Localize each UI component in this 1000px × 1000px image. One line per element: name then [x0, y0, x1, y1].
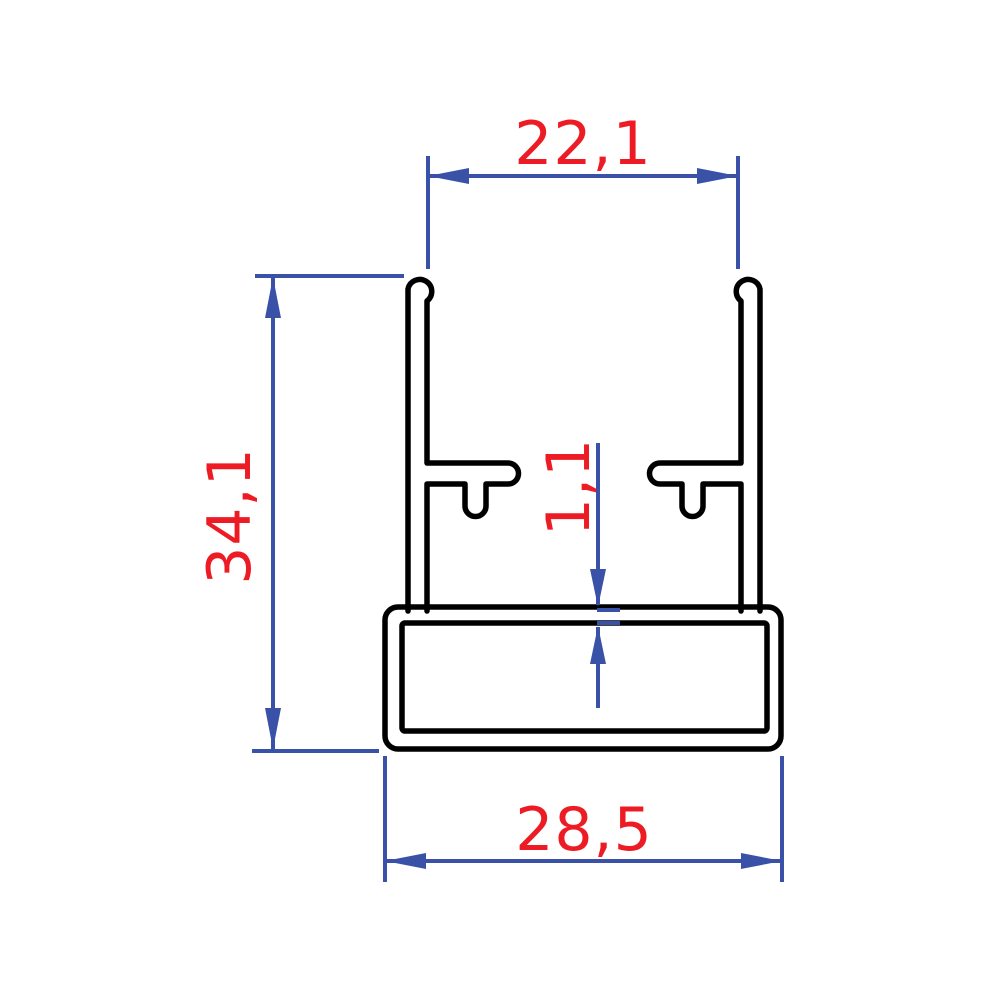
dim-bottom-arrow-left: [385, 853, 426, 869]
dim-bottom-arrow-right: [741, 853, 782, 869]
profile-left-wall: [408, 279, 519, 611]
profile-right-wall: [650, 279, 761, 611]
dim-thickness-label: 1,1: [534, 438, 604, 536]
dimension-graphics: [252, 156, 782, 882]
profile-drawing: 22,1 34,1 1,1 28,5: [0, 0, 1000, 1000]
dim-height-label: 34,1: [195, 447, 265, 585]
drawing-canvas: 22,1 34,1 1,1 28,5: [0, 0, 1000, 1000]
dim-bottom-width-label: 28,5: [515, 795, 653, 865]
dim-thickness-arrow-down: [590, 569, 606, 607]
dim-top-arrow-right: [697, 168, 738, 184]
dim-height: [252, 276, 404, 751]
profile-base-inner: [402, 623, 767, 731]
dim-top-width-label: 22,1: [514, 109, 652, 179]
dim-height-arrow-bottom: [265, 708, 281, 749]
dim-top-arrow-left: [428, 168, 469, 184]
dim-height-arrow-top: [265, 277, 281, 318]
profile-base-outer: [385, 607, 781, 749]
